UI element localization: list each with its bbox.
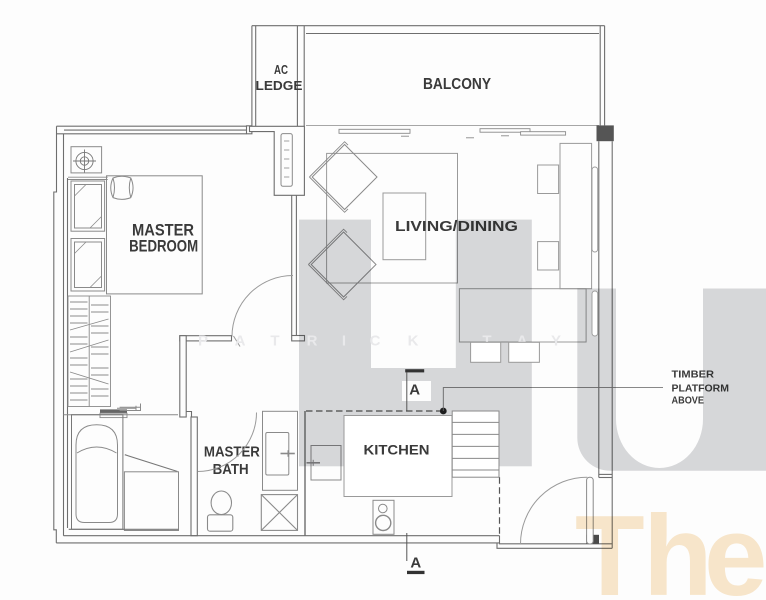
svg-text:P: P — [198, 333, 208, 350]
svg-text:C: C — [370, 333, 381, 350]
svg-text:BALCONY: BALCONY — [423, 76, 491, 93]
svg-text:T: T — [270, 333, 279, 350]
svg-text:R: R — [307, 333, 318, 350]
svg-text:ABOVE: ABOVE — [672, 395, 705, 406]
svg-text:A: A — [410, 555, 421, 572]
svg-text:BEDROOM: BEDROOM — [129, 238, 198, 256]
svg-text:A: A — [409, 382, 420, 399]
svg-text:BATH: BATH — [213, 462, 249, 478]
svg-text:AC: AC — [274, 62, 288, 77]
svg-text:MASTER: MASTER — [204, 445, 260, 461]
svg-text:Y: Y — [551, 333, 561, 350]
svg-text:A: A — [235, 333, 246, 350]
svg-text:The: The — [575, 493, 766, 600]
svg-text:KITCHEN: KITCHEN — [364, 443, 430, 458]
svg-text:LEDGE: LEDGE — [256, 78, 303, 93]
svg-text:I: I — [342, 333, 346, 350]
svg-text:K: K — [408, 333, 419, 350]
